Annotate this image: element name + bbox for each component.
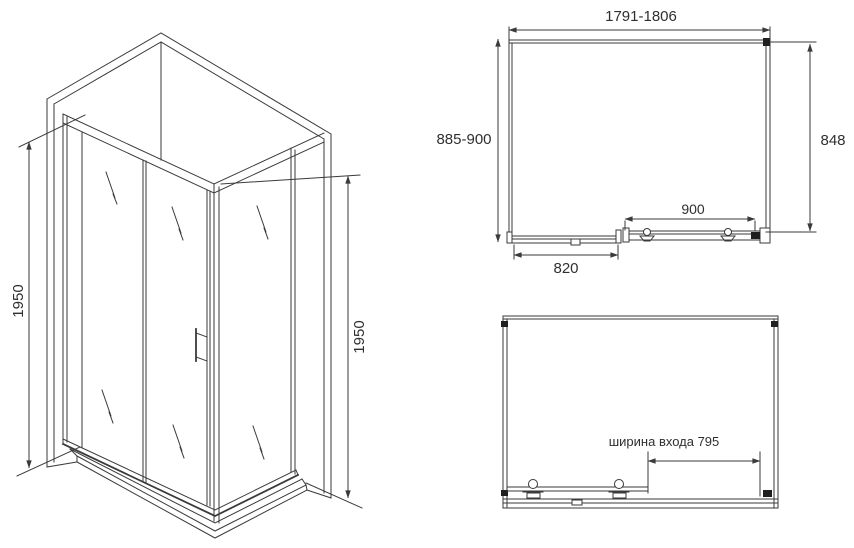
- witness-line: [625, 221, 755, 230]
- dim-plan-door: 900: [625, 201, 755, 230]
- plan-right-edge: [766, 40, 770, 243]
- dim-plan-depth-label: 885-900: [436, 131, 491, 148]
- dim-plan-width-label: 1791-1806: [605, 8, 677, 25]
- front-top-rail-inner: [63, 123, 214, 193]
- plan-left-edge: [509, 40, 512, 243]
- wall-top-inner-line: [54, 42, 324, 139]
- dim-plan-width: 1791-1806: [509, 8, 770, 39]
- side-top-rail-inner: [214, 142, 324, 193]
- witness-line: [17, 447, 80, 476]
- dim-height-right-label: 1950: [351, 320, 368, 353]
- dim-plan-depth: 885-900: [436, 39, 498, 242]
- left-wall-floor-line: [47, 462, 77, 467]
- witness-line: [509, 27, 770, 39]
- wall-profile-bracket: [763, 38, 770, 46]
- shower-tray: [63, 439, 307, 538]
- roller-front: [523, 480, 543, 499]
- dim-plan-side-label: 848: [820, 132, 845, 149]
- witness-line: [648, 452, 760, 496]
- roller-plan: [640, 229, 654, 242]
- plan-sliding-door-rail: [623, 228, 770, 243]
- rail-fastener: [572, 500, 582, 505]
- wall-bracket: [501, 321, 508, 327]
- dim-plan-fixed-label: 820: [553, 260, 578, 277]
- side-top-rail-outer: [214, 133, 324, 184]
- front-left-edge: [503, 316, 507, 508]
- roller-front: [609, 480, 629, 499]
- plan-view: 1791-1806 885-900 848 900 820: [436, 8, 845, 277]
- iso-view: 1950 1950: [10, 33, 368, 538]
- technical-drawing: 1950 1950: [0, 0, 854, 548]
- roller-plan: [721, 229, 735, 242]
- door-handle: [196, 329, 207, 361]
- dim-height-right: 1950: [221, 175, 368, 508]
- plan-fixed-panel-rail: [507, 230, 621, 245]
- witness-line: [514, 245, 618, 259]
- dim-plan-fixed: 820: [514, 245, 618, 277]
- glass-reflection-marks: [102, 172, 268, 459]
- front-top-rail-outer: [63, 114, 214, 184]
- front-right-edge: [774, 316, 778, 508]
- front-door-bar: [507, 480, 648, 506]
- dim-front-entrance-label: ширина входа 795: [609, 434, 720, 449]
- front-bottom-rail: [503, 499, 778, 508]
- dim-plan-door-label: 900: [681, 201, 705, 217]
- witness-line: [306, 483, 362, 508]
- front-view: ширина входа 795: [501, 316, 778, 508]
- dim-height-left-label: 1950: [10, 284, 27, 317]
- front-top-edge: [503, 316, 778, 319]
- wall-bracket: [763, 490, 772, 497]
- right-wall-floor-line: [307, 490, 331, 498]
- wall-bracket: [771, 321, 778, 327]
- dim-plan-side: 848: [766, 42, 846, 232]
- plan-top-edge: [509, 40, 770, 43]
- witness-line: [766, 42, 816, 232]
